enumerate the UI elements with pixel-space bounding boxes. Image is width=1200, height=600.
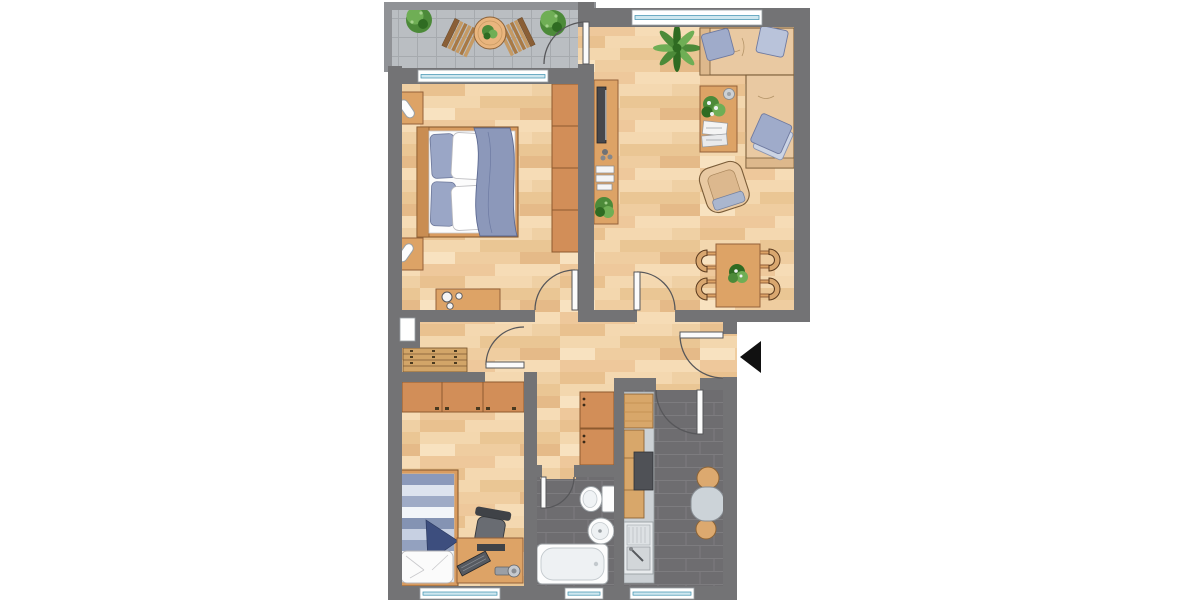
small-bedroom-window bbox=[420, 588, 500, 599]
dresser bbox=[436, 289, 500, 312]
doorway-floor bbox=[540, 461, 576, 479]
entrance-arrow bbox=[740, 341, 761, 373]
bistro-table bbox=[474, 17, 506, 49]
hall-closet bbox=[580, 392, 614, 465]
monitor bbox=[477, 544, 505, 551]
potted-shrub bbox=[406, 7, 432, 33]
doorway-floor bbox=[535, 306, 576, 322]
wardrobe bbox=[402, 382, 524, 412]
tv-screen bbox=[605, 90, 607, 140]
desk bbox=[457, 538, 523, 583]
wall-table bbox=[691, 487, 724, 521]
wardrobe bbox=[552, 84, 580, 252]
doorway-floor bbox=[656, 374, 700, 390]
kitchen-sink bbox=[624, 522, 653, 574]
stool bbox=[697, 467, 719, 489]
double-bed bbox=[417, 127, 518, 237]
stool bbox=[696, 519, 716, 539]
balcony-wall bbox=[384, 2, 596, 10]
coffee-table bbox=[700, 86, 737, 152]
tv-sideboard bbox=[594, 80, 618, 224]
bathtub bbox=[537, 544, 608, 584]
doorway-floor bbox=[637, 306, 677, 322]
toilet bbox=[580, 486, 615, 512]
pillow bbox=[401, 551, 453, 583]
shoe-bench bbox=[403, 348, 467, 372]
desk-lamp bbox=[495, 565, 520, 577]
upper-cabinet bbox=[624, 394, 653, 428]
bathroom-window bbox=[565, 588, 603, 599]
balcony-wall bbox=[384, 2, 392, 72]
blanket bbox=[474, 128, 517, 236]
cushion bbox=[756, 25, 789, 57]
doorway-floor bbox=[723, 332, 737, 378]
stove bbox=[634, 452, 653, 490]
single-bed bbox=[396, 470, 458, 586]
living-room-window bbox=[632, 10, 762, 25]
bedroom-window bbox=[418, 70, 548, 82]
floor-plan bbox=[0, 0, 1200, 600]
magazines bbox=[702, 121, 728, 147]
niche-window bbox=[400, 318, 415, 341]
potted-shrub bbox=[540, 10, 566, 36]
kitchen-window bbox=[630, 588, 694, 599]
tv bbox=[597, 87, 606, 143]
stereo-boxes bbox=[596, 166, 614, 190]
palm-plant bbox=[653, 24, 701, 72]
